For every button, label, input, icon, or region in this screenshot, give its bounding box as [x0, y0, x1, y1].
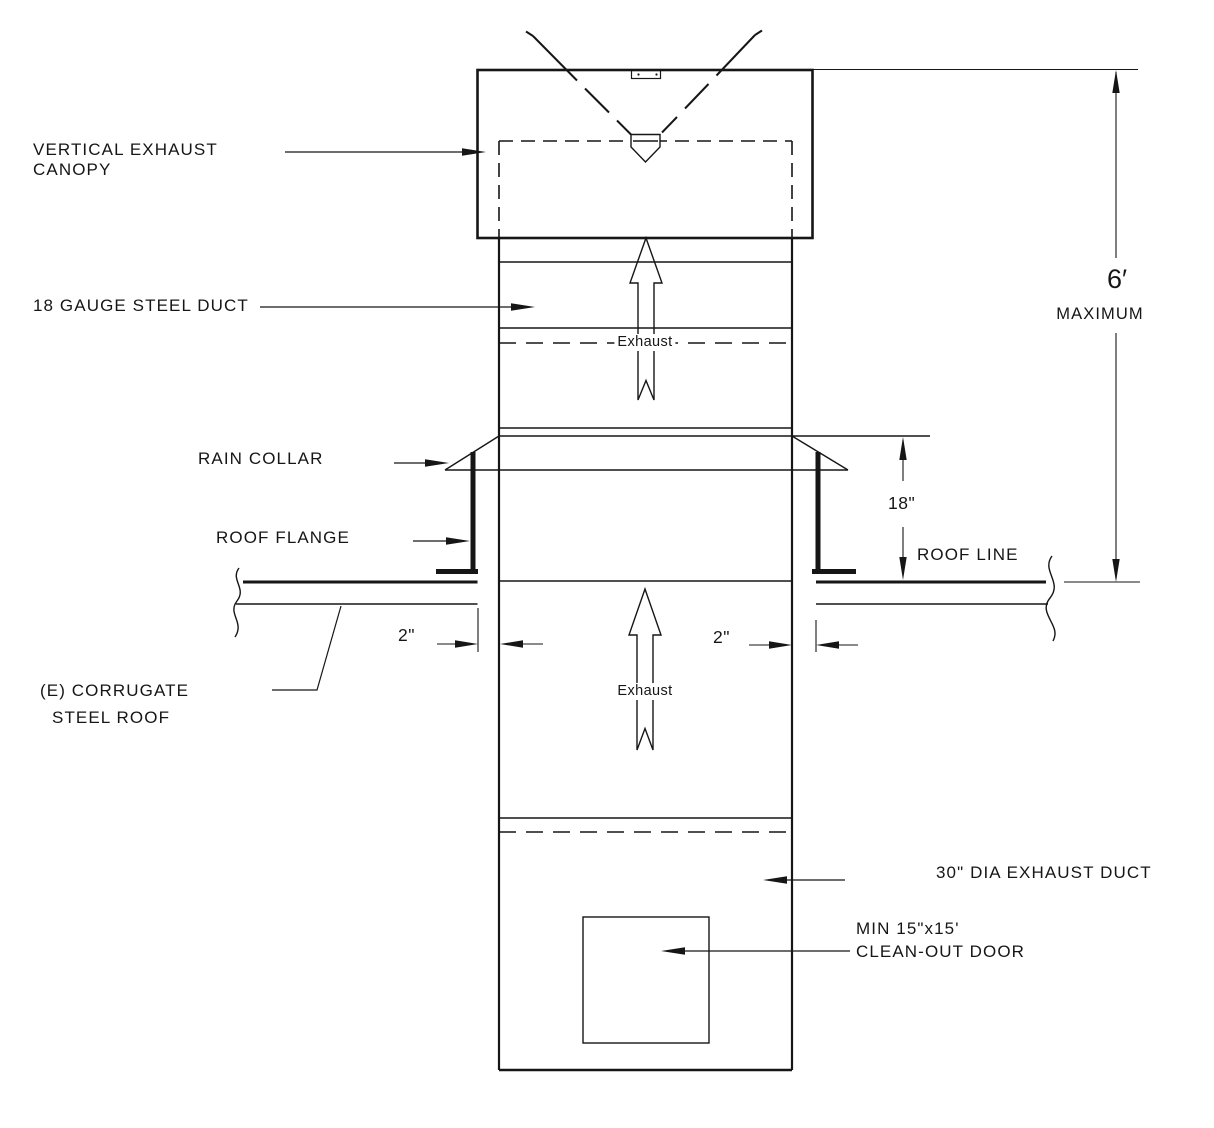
duct-outline [499, 238, 792, 1070]
roof-section-right [816, 556, 1055, 641]
label-roof-flange: ROOF FLANGE [216, 528, 350, 548]
label-cleanout-door-line1: MIN 15"x15' [856, 919, 1025, 939]
label-corrugate-roof-line1: (E) CORRUGATE [40, 681, 189, 701]
label-roof-line: ROOF LINE [917, 545, 1019, 565]
label-exhaust-upper: Exhaust [614, 334, 675, 351]
cleanout-door-square [583, 917, 709, 1043]
dim-text-2in-right: 2" [713, 627, 730, 648]
dim-text-18in: 18" [888, 493, 915, 514]
dim-2in-right-arrowheads [769, 641, 839, 648]
leader-arrows [260, 152, 850, 951]
dim-text-2in-left: 2" [398, 625, 415, 646]
label-exhaust-lower: Exhaust [614, 683, 675, 700]
leader-arrowheads [425, 148, 787, 955]
label-cleanout-door-line2: CLEAN-OUT DOOR [856, 942, 1025, 962]
dim-2in-left [437, 608, 543, 652]
label-corrugate-roof-line2: STEEL ROOF [52, 708, 189, 728]
label-corrugate-roof: (E) CORRUGATE STEEL ROOF [40, 681, 189, 729]
roof-break-left [234, 568, 240, 637]
canopy-bracket-rivets [637, 73, 657, 75]
exhaust-arrow-lower [629, 589, 661, 750]
canopy-internal-baffle [526, 31, 762, 135]
roof-section-left [234, 568, 478, 637]
roof-break-right [1046, 556, 1055, 641]
dim-2in-right [749, 620, 858, 652]
label-vertical-exhaust-canopy: VERTICAL EXHAUST CANOPY [33, 140, 218, 181]
dim-text-maximum: MAXIMUM [1056, 305, 1143, 325]
label-cleanout-door: MIN 15"x15' CLEAN-OUT DOOR [856, 919, 1025, 963]
exhaust-duct-detail-drawing: VERTICAL EXHAUST CANOPY 18 GAUGE STEEL D… [0, 0, 1214, 1128]
label-rain-collar: RAIN COLLAR [198, 449, 323, 469]
canopy-nozzle [631, 135, 660, 163]
rain-collar-lines [445, 428, 930, 470]
label-steel-duct: 18 GAUGE STEEL DUCT [33, 296, 249, 316]
dim-text-6ft: 6′ [1107, 263, 1127, 295]
dim-2in-left-arrowheads [455, 640, 523, 647]
label-dia-exhaust-duct: 30" DIA EXHAUST DUCT [936, 863, 1152, 883]
label-vertical-exhaust-canopy-line2: CANOPY [33, 160, 218, 180]
dim-6ft-maximum [813, 70, 1140, 583]
label-vertical-exhaust-canopy-line1: VERTICAL EXHAUST [33, 140, 218, 160]
corrugate-roof-leader [272, 606, 341, 690]
